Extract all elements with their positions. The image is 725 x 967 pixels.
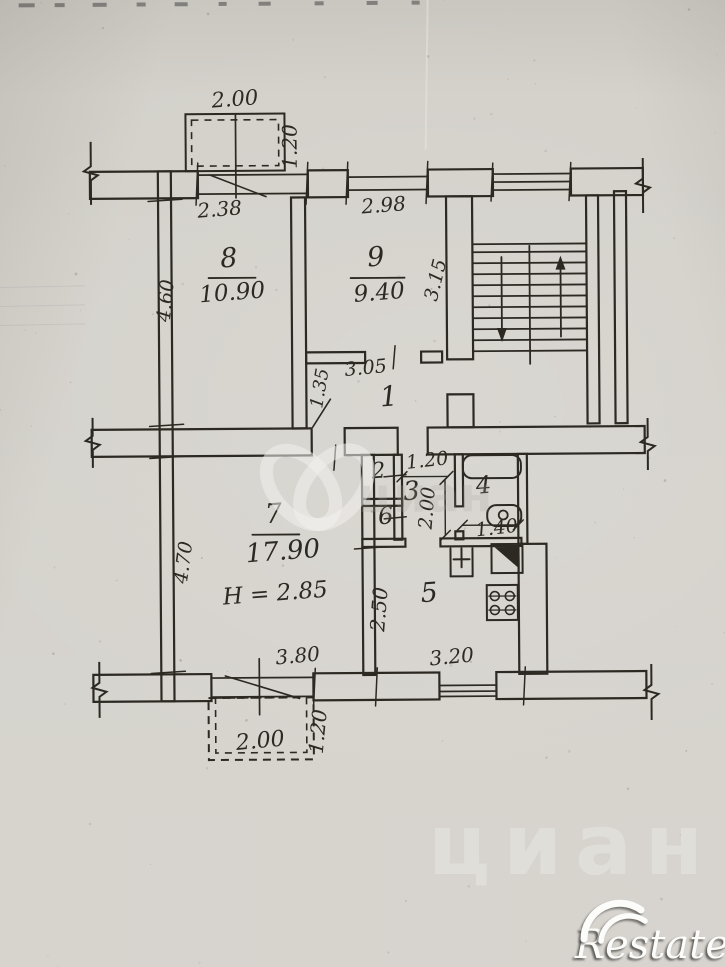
scan-artifact-line	[0, 324, 85, 326]
paper-speckle	[405, 900, 407, 902]
dimension-label: 1.35	[306, 367, 333, 410]
room-8-label: 8	[219, 242, 239, 274]
paper-speckle	[415, 400, 417, 402]
wall	[571, 168, 643, 196]
paper-speckle	[227, 671, 228, 672]
paper-speckle	[533, 59, 535, 61]
paper-speckle	[544, 150, 547, 153]
paper-speckle	[99, 640, 101, 642]
paper-speckle	[398, 275, 399, 276]
paper-speckle	[152, 313, 154, 315]
wall	[90, 171, 198, 199]
paper-speckle	[431, 288, 433, 290]
room-7-height: H = 2.85	[221, 577, 329, 611]
wall	[308, 170, 348, 197]
paper-speckle	[648, 457, 650, 459]
window-line	[493, 182, 571, 183]
paper-speckle	[275, 289, 277, 291]
opening-diagonal	[225, 675, 299, 699]
scan-edge-mark	[137, 2, 146, 6]
paper-speckle	[507, 78, 509, 80]
room-1-label: 1	[379, 379, 399, 413]
paper-speckle	[525, 940, 526, 941]
window-line	[348, 177, 428, 178]
dimension-label: 4.60	[153, 279, 179, 324]
restate-watermark: Restate	[575, 925, 725, 965]
paper-speckle	[688, 8, 691, 11]
paper-speckle	[685, 750, 687, 752]
dimension-tick	[148, 199, 182, 201]
paper-speckle	[715, 132, 716, 133]
wall-break-symbol	[86, 418, 100, 468]
paper-speckle	[47, 955, 49, 957]
wall	[421, 351, 442, 362]
paper-speckle	[293, 39, 294, 40]
dimension-tick	[393, 346, 395, 369]
scan-edge-mark	[19, 3, 35, 7]
paper-speckle	[371, 510, 373, 512]
scan-edge-mark	[315, 1, 324, 5]
paper-speckle	[428, 506, 430, 508]
paper-speckle	[68, 213, 69, 214]
paper-speckle	[554, 416, 556, 418]
room-8-area: 10.90	[198, 277, 266, 308]
dimension-tick	[151, 671, 185, 673]
wall	[93, 674, 211, 702]
paper-speckle	[4, 165, 6, 167]
paper-speckle	[594, 522, 596, 524]
dimension-label: 2.00	[210, 85, 259, 113]
paper-speckle	[324, 76, 326, 78]
window-line	[493, 174, 571, 175]
paper-speckle	[461, 537, 464, 540]
paper-speckle	[555, 557, 556, 558]
scan-edge-mark	[175, 2, 188, 6]
window-line	[493, 190, 571, 191]
paper-speckle	[464, 527, 466, 529]
wall	[496, 671, 646, 699]
paper-speckle	[535, 83, 536, 84]
paper-speckle	[24, 330, 25, 331]
window-line	[211, 677, 313, 678]
paper-speckle	[63, 703, 65, 705]
window-line	[198, 193, 308, 194]
paper-speckle	[568, 750, 571, 753]
scan-edge-mark	[55, 3, 65, 7]
paper-speckle	[636, 107, 637, 108]
paper-speckle	[102, 27, 104, 29]
dimension-tick	[150, 424, 184, 426]
wall	[614, 191, 628, 423]
room-9-label: 9	[366, 241, 386, 273]
paper-speckle	[634, 537, 635, 538]
dimension-label: 3.80	[274, 641, 321, 669]
paper-speckle	[52, 652, 55, 655]
paper-speckle	[179, 659, 182, 662]
paper-speckle	[711, 683, 713, 685]
paper-speckle	[488, 305, 490, 307]
paper-speckle	[0, 409, 1, 410]
scan-edge-mark	[93, 3, 107, 7]
paper-speckle	[427, 55, 430, 58]
dimension-label: 3.05	[344, 355, 388, 381]
window-line	[348, 190, 428, 191]
paper-speckle	[473, 117, 476, 120]
paper-speckle	[545, 756, 547, 758]
paper-speckle	[623, 488, 624, 489]
paper-speckle	[31, 426, 32, 427]
paper-speckle	[673, 237, 675, 239]
paper-speckle	[245, 719, 248, 722]
dimension-label: 2.50	[365, 586, 393, 634]
paper-speckle	[458, 656, 459, 657]
sink-unit-triangle-icon	[494, 547, 519, 569]
dimension-label: 2.00	[234, 726, 286, 756]
wall	[518, 454, 528, 544]
stair-divider	[529, 246, 530, 364]
wall	[586, 195, 600, 423]
paper-speckle	[470, 661, 472, 663]
paper-speckle	[201, 557, 203, 559]
cian-watermark: циан	[428, 796, 716, 894]
faint-cian-watermark: циан	[358, 467, 493, 524]
wall-break-symbol	[84, 142, 98, 205]
scan-edge-mark	[259, 2, 271, 6]
paper-speckle	[490, 113, 492, 115]
paper-speckle	[75, 273, 78, 276]
scan-page: 810.9099.40123456717.90H = 2.852.001.202…	[0, 0, 725, 967]
paper-speckle	[159, 440, 161, 442]
room-7-area: 17.90	[245, 534, 322, 570]
paper-speckle	[89, 823, 91, 825]
wall	[158, 171, 175, 701]
paper-speckle	[35, 332, 36, 333]
paper-speckle	[255, 266, 257, 268]
paper-speckle	[486, 510, 489, 513]
paper-speckle	[70, 382, 72, 384]
paper-speckle	[357, 380, 359, 382]
paper-speckle	[499, 421, 501, 423]
paper-speckle	[387, 952, 389, 954]
wall	[446, 196, 473, 359]
paper-speckle	[441, 740, 443, 742]
dimension-label: 1.20	[277, 124, 301, 169]
dimension-label: 2.38	[195, 195, 242, 222]
stove-icon	[487, 585, 518, 620]
paper-speckle	[590, 427, 591, 428]
stair-down-arrow	[501, 257, 502, 335]
scan-edge-mark	[219, 2, 227, 6]
stair-up-arrow	[560, 263, 561, 337]
room-5-label: 5	[419, 577, 439, 609]
paper-speckle	[664, 479, 667, 482]
paper-speckle	[627, 787, 630, 790]
scan-edge-mark	[412, 1, 420, 5]
wall	[428, 426, 645, 455]
scan-artifact-line	[0, 286, 85, 288]
scan-artifact-line	[0, 305, 85, 307]
paper-speckle	[676, 626, 677, 627]
paper-speckle	[660, 898, 663, 901]
paper-speckle	[128, 239, 130, 241]
scan-crease	[425, 0, 429, 150]
paper-speckle	[150, 864, 151, 865]
paper-speckle	[40, 2, 41, 3]
paper-speckle	[181, 283, 184, 286]
paper-speckle	[282, 564, 285, 567]
paper-speckle	[80, 309, 81, 310]
paper-speckle	[433, 340, 435, 342]
wall	[428, 169, 493, 196]
dimension-label: 1.20	[304, 708, 332, 755]
wall-break-symbol	[636, 158, 650, 213]
wall	[447, 394, 473, 427]
paper-speckle	[207, 13, 210, 16]
window-line	[198, 174, 308, 175]
paper-speckle	[206, 767, 208, 769]
paper-speckle	[450, 664, 453, 667]
stair-step	[472, 243, 586, 244]
paper-speckle	[199, 962, 201, 964]
paper-speckle	[716, 54, 718, 56]
room-9-area: 9.40	[353, 278, 406, 308]
dimension-label: 2.98	[359, 191, 406, 218]
paper-speckle	[289, 555, 290, 556]
restate-swoosh-icon	[581, 903, 657, 943]
scan-edge-mark	[367, 1, 378, 5]
paper-speckle	[53, 566, 55, 568]
paper-speckle	[116, 579, 118, 581]
paper-speckle	[416, 508, 417, 509]
paper-speckle	[322, 167, 324, 169]
wall	[291, 197, 307, 428]
dimension-label: 4.70	[170, 540, 198, 586]
paper-speckle	[499, 430, 501, 432]
